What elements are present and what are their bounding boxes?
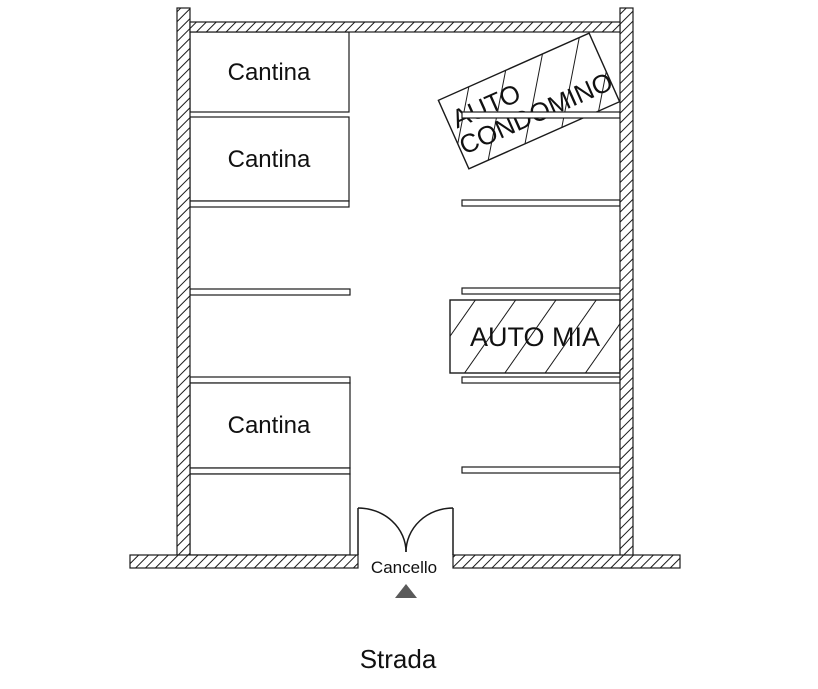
room-unlabeled (190, 474, 350, 555)
gate-arc-left (358, 508, 406, 552)
parking-divider-left-2 (190, 289, 350, 295)
parking-divider-right-5 (462, 467, 620, 473)
parking-divider-left-1 (190, 201, 349, 207)
direction-arrow-icon (395, 584, 417, 598)
wall-right (620, 8, 633, 568)
wall-bottom-right (453, 555, 680, 568)
wall-bottom-left (130, 555, 358, 568)
room-cantina-1-label: Cantina (228, 59, 311, 86)
wall-left (177, 8, 190, 568)
parking-divider-right-2 (462, 200, 620, 206)
car-mia-label: AUTO MIA (470, 322, 600, 352)
gate-arc-right (406, 508, 453, 552)
parking-divider-left-3 (190, 377, 350, 383)
road-label: Strada (360, 644, 437, 674)
room-cantina-2-label: Cantina (228, 146, 311, 173)
parking-divider-right-1 (462, 112, 620, 118)
car-mia: AUTO MIA (450, 300, 620, 373)
parking-divider-left-4 (190, 468, 350, 474)
floor-plan-page: Cantina Cantina Cantina AUTO CONDOMINO A… (0, 0, 818, 689)
car-condominio: AUTO CONDOMINO (438, 33, 620, 169)
parking-divider-right-4 (462, 377, 620, 383)
wall-top (190, 22, 620, 32)
room-cantina-3-label: Cantina (228, 412, 311, 439)
gate-cancello (358, 508, 453, 555)
parking-divider-right-3 (462, 288, 620, 294)
gate-label: Cancello (371, 558, 437, 577)
courtyard-floor-plan: Cantina Cantina Cantina AUTO CONDOMINO A… (0, 0, 818, 689)
